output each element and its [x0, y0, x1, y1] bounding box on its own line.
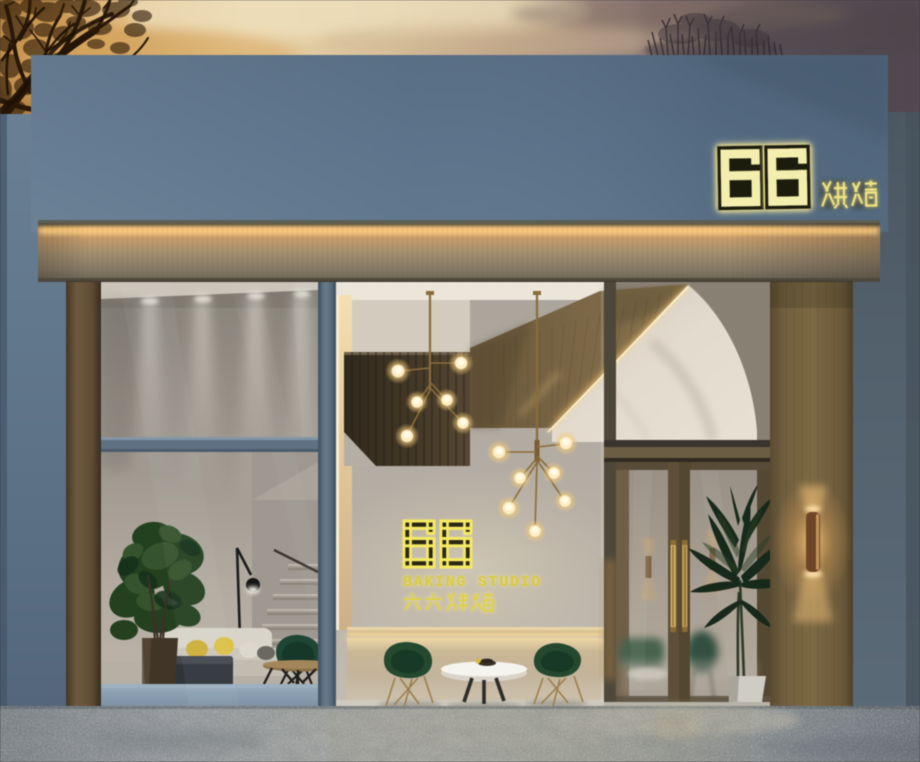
- svg-text:BAKING STUDIO: BAKING STUDIO: [403, 574, 542, 591]
